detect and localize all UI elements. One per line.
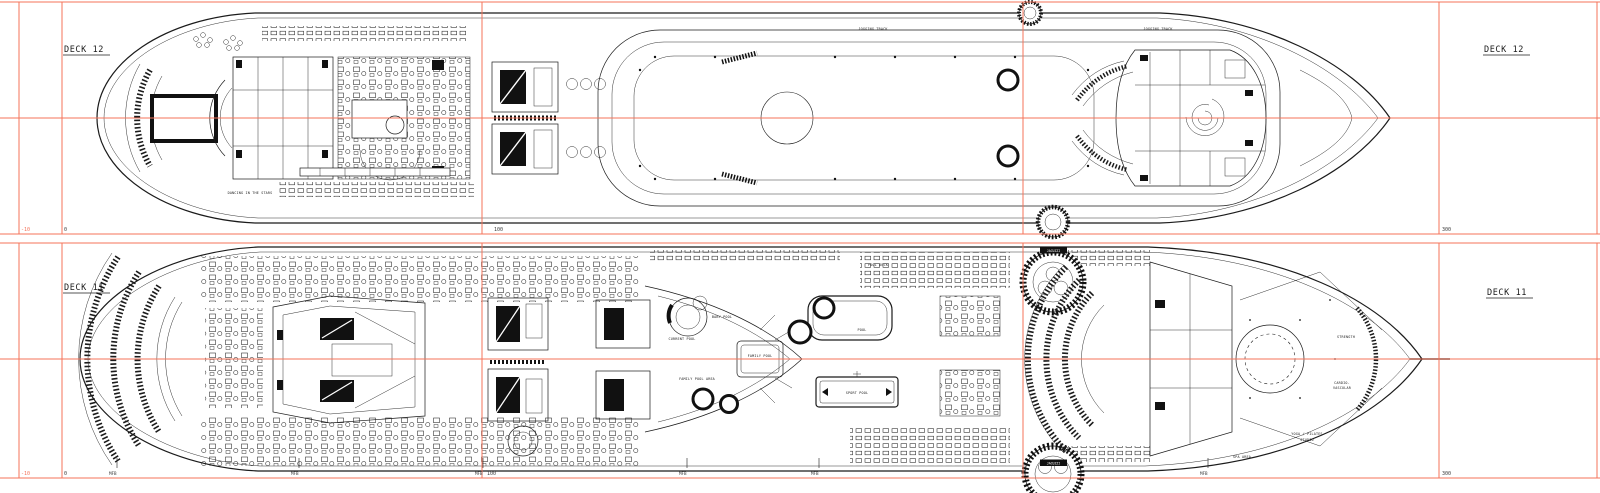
- grid11-zero: 0: [64, 471, 67, 477]
- label-family-pool-area: FAMILY POOL AREA: [679, 377, 715, 381]
- label-cardio-line2: VASCULAR: [1333, 386, 1352, 390]
- label-spa-area: SPA AREA: [1233, 455, 1251, 459]
- deck12-promenade-top: [262, 26, 467, 41]
- grid11-mfb-2: MFB: [291, 471, 299, 476]
- label-dancing-in-the-stars: DANCING IN THE STARS: [228, 191, 273, 195]
- label-cardio-line1: CARDIO-: [1334, 381, 1350, 385]
- deck11-title-right: DECK 11: [1487, 288, 1527, 298]
- label-jogging-track-2: JOGGING TRACK: [1143, 27, 1173, 31]
- grid11-mfb-3: MFB: [475, 471, 483, 476]
- grid11-100: 100: [487, 471, 496, 477]
- grid11-mfb-4: MFB: [679, 471, 687, 476]
- label-yoga-line1: YOGA / PILATES: [1291, 432, 1322, 436]
- deck11-jacuzzi-bottom: [1025, 446, 1081, 493]
- label-jacuzzi-top: JACUZZI: [1047, 249, 1061, 253]
- deck12-title-right: DECK 12: [1484, 45, 1524, 55]
- grid12-minus10: -10: [21, 227, 30, 233]
- label-jacuzzi-bottom: JACUZZI: [1047, 462, 1061, 466]
- deck-plan-drawing: DECK 12 DECK 12 DECK 11 DECK 11 JOGGING …: [0, 0, 1600, 493]
- label-current-pool: CURRENT POOL: [669, 337, 696, 341]
- deck11-beds-poolside-top: [860, 252, 1010, 288]
- grid11-300: 300: [1442, 471, 1451, 477]
- grid12-100: 100: [494, 227, 503, 233]
- deck12-title-left: DECK 12: [64, 45, 104, 55]
- deck-plan-sheet: DECK 12 DECK 12 DECK 11 DECK 11 JOGGING …: [0, 0, 1600, 493]
- deck12-table-clusters: [194, 33, 243, 51]
- deck11-main-pools: [789, 296, 1000, 416]
- label-strength: STRENGTH: [1337, 335, 1355, 339]
- label-pool: POOL: [858, 328, 867, 332]
- grid12-zero: 0: [64, 227, 67, 233]
- deck11-tables-bottom: [200, 416, 640, 466]
- grid11-mfb-5: MFB: [811, 471, 819, 476]
- deck12-promenade-bottom: [278, 182, 474, 197]
- label-pool-deck: POOL DECK: [868, 263, 889, 267]
- deck11-tables-left: [205, 308, 263, 408]
- grid11-minus10: -10: [21, 471, 30, 477]
- grid11-mfb-6: MFB: [1200, 471, 1208, 476]
- deck11-beds-top: [650, 250, 840, 263]
- grid-hlines-deck12: [0, 2, 1600, 234]
- label-baby-pool: BABY POOL: [712, 315, 732, 319]
- label-sport-pool: SPORT POOL: [846, 391, 868, 395]
- deck12-jacuzzi-structures: [1019, 2, 1068, 237]
- deck11-title-left: DECK 11: [64, 283, 104, 293]
- deck11-beds-poolside-bottom: [850, 426, 1010, 466]
- label-family-pool: FAMILY POOL: [748, 354, 773, 358]
- label-jogging-track-1: JOGGING TRACK: [858, 27, 888, 31]
- deck11-tables-top: [200, 256, 640, 302]
- deck12-plan: [97, 2, 1390, 237]
- grid12-300: 300: [1442, 227, 1451, 233]
- label-yoga-line2: STUDIO: [1300, 438, 1313, 442]
- grid11-mfb-1: MFB: [109, 471, 117, 476]
